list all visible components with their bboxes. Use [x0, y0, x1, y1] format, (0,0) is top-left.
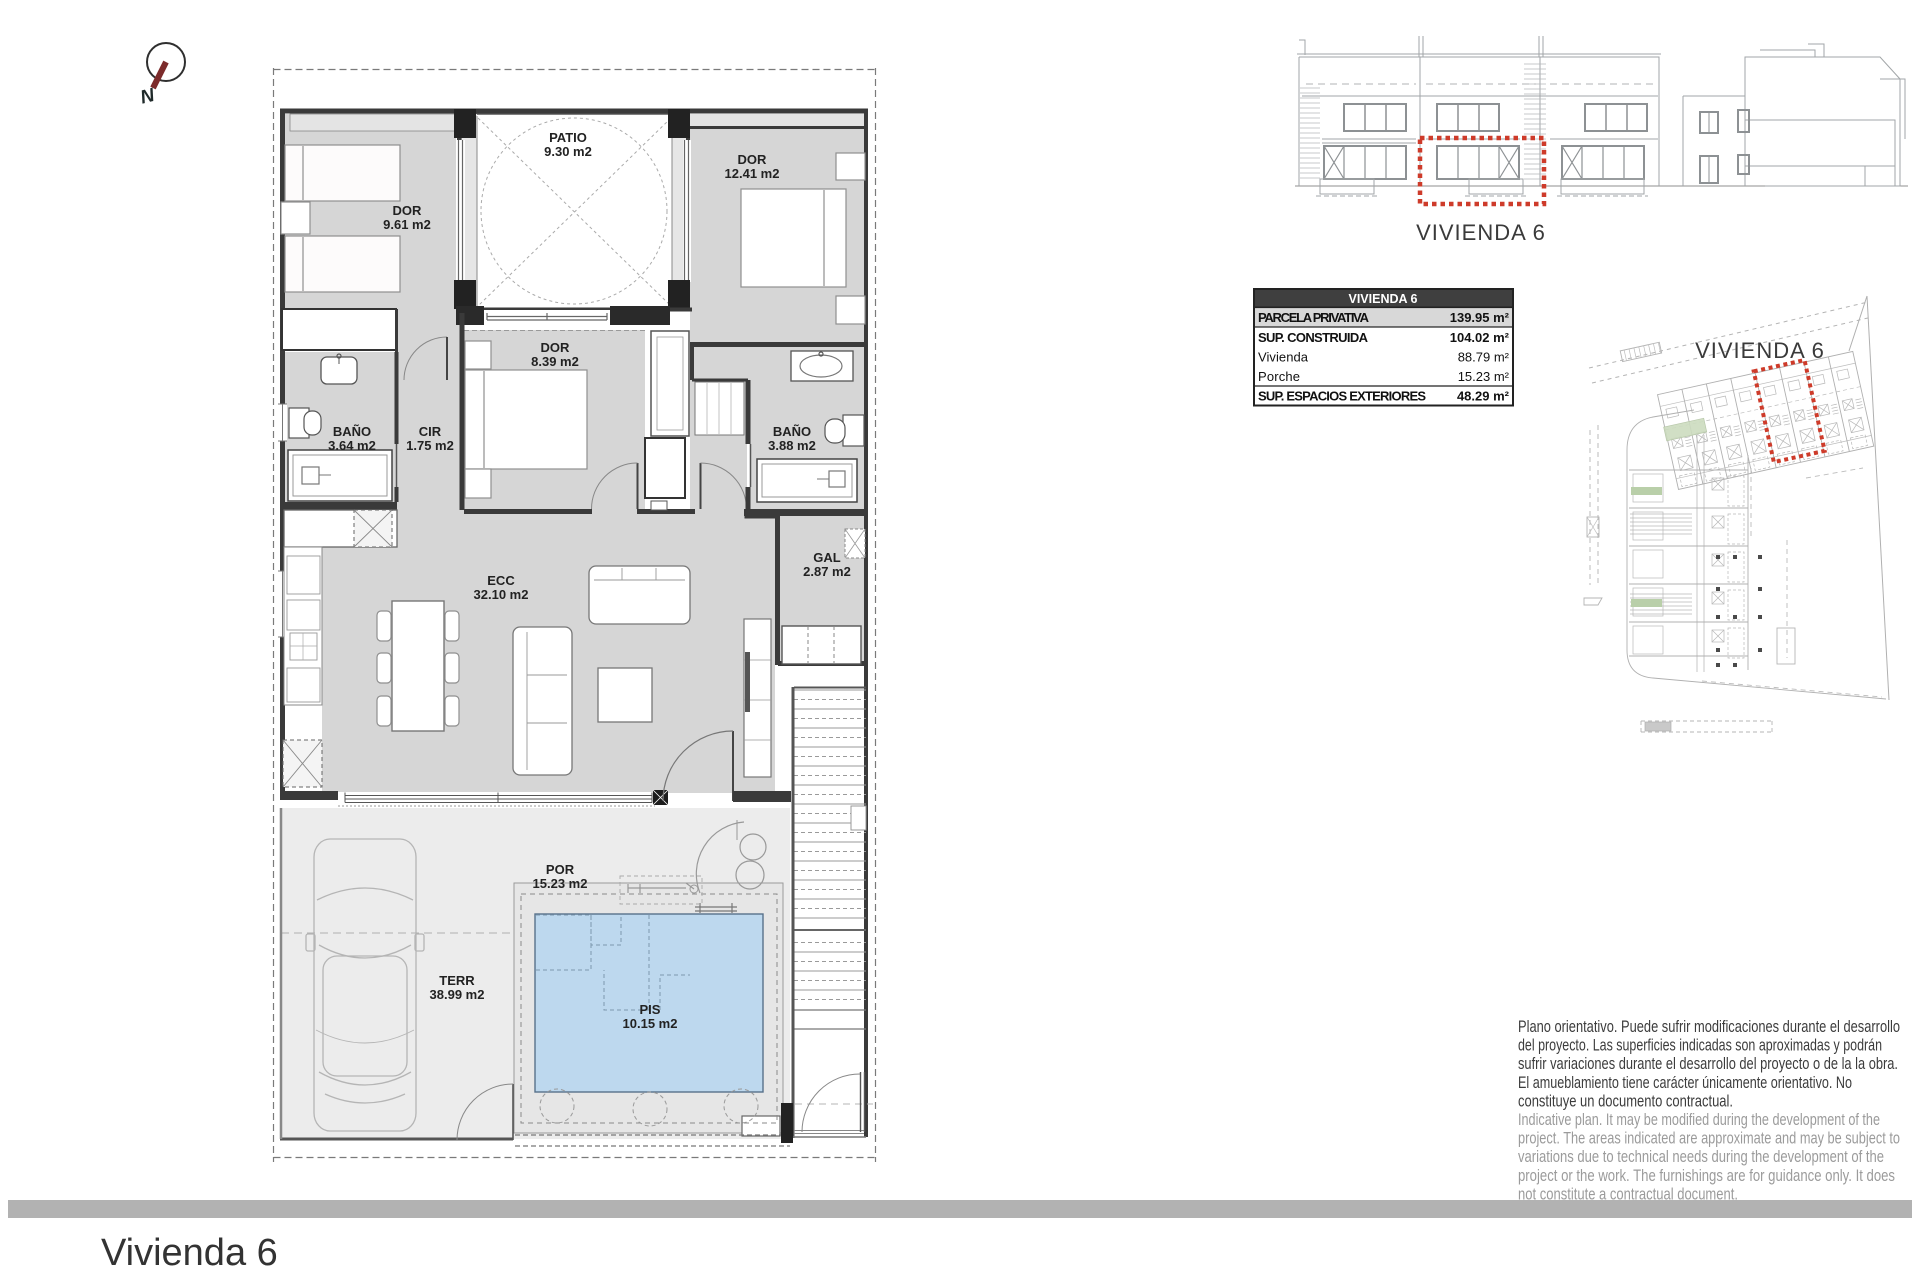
svg-text:Vivienda: Vivienda [1258, 350, 1309, 365]
svg-text:32.10 m2: 32.10 m2 [474, 587, 529, 602]
svg-text:12.41 m2: 12.41 m2 [725, 166, 780, 181]
svg-text:TERR: TERR [439, 973, 475, 988]
svg-text:88.79 m²: 88.79 m² [1458, 350, 1510, 365]
svg-text:sufrir variaciones durante el: sufrir variaciones durante el desarrollo… [1518, 1055, 1898, 1073]
svg-text:Porche: Porche [1258, 369, 1300, 384]
svg-text:15.23 m²: 15.23 m² [1458, 369, 1510, 384]
svg-text:DOR: DOR [738, 152, 768, 167]
svg-text:15.23 m2: 15.23 m2 [533, 876, 588, 891]
svg-text:project. The areas indicated a: project. The areas indicated are approxi… [1518, 1130, 1900, 1148]
svg-text:9.61 m2: 9.61 m2 [383, 217, 431, 232]
svg-text:10.15 m2: 10.15 m2 [623, 1016, 678, 1031]
svg-text:CIR: CIR [419, 424, 442, 439]
svg-text:PARCELA PRIVATIVA: PARCELA PRIVATIVA [1258, 310, 1370, 325]
svg-text:PIS: PIS [640, 1002, 661, 1017]
svg-text:38.99 m2: 38.99 m2 [430, 987, 485, 1002]
svg-text:Vivienda 6: Vivienda 6 [101, 1232, 278, 1274]
svg-text:1.75 m2: 1.75 m2 [406, 438, 454, 453]
svg-text:project or the work. The furni: project or the work. The furnishings are… [1518, 1167, 1895, 1185]
svg-text:del proyecto. Las superficies: del proyecto. Las superficies indicadas … [1518, 1037, 1882, 1055]
svg-text:139.95 m²: 139.95 m² [1450, 310, 1510, 325]
svg-text:GAL: GAL [813, 550, 841, 565]
svg-text:48.29 m²: 48.29 m² [1457, 389, 1510, 404]
svg-text:El amueblamiento tiene carácte: El amueblamiento tiene carácter únicamen… [1518, 1074, 1852, 1092]
svg-text:ECC: ECC [487, 573, 515, 588]
svg-text:VIVIENDA 6: VIVIENDA 6 [1348, 292, 1417, 306]
svg-text:PATIO: PATIO [549, 130, 587, 145]
svg-text:8.39 m2: 8.39 m2 [531, 354, 579, 369]
svg-text:BAÑO: BAÑO [333, 424, 371, 439]
svg-text:VIVIENDA 6: VIVIENDA 6 [1416, 220, 1546, 245]
svg-text:SUP. CONSTRUIDA: SUP. CONSTRUIDA [1258, 330, 1369, 345]
svg-text:3.64 m2: 3.64 m2 [328, 438, 376, 453]
svg-text:BAÑO: BAÑO [773, 424, 811, 439]
svg-text:VIVIENDA 6: VIVIENDA 6 [1695, 338, 1825, 363]
svg-text:Plano orientativo. Puede sufri: Plano orientativo. Puede sufrir modifica… [1518, 1018, 1900, 1036]
svg-text:DOR: DOR [393, 203, 423, 218]
svg-text:constituye un documento contra: constituye un documento contractual. [1518, 1092, 1733, 1110]
svg-text:variations due to technical ne: variations due to technical needs during… [1518, 1148, 1884, 1166]
svg-text:SUP. ESPACIOS EXTERIORES: SUP. ESPACIOS EXTERIORES [1258, 389, 1426, 404]
svg-text:2.87 m2: 2.87 m2 [803, 564, 851, 579]
svg-text:3.88 m2: 3.88 m2 [768, 438, 816, 453]
svg-text:Indicative plan. It may be mod: Indicative plan. It may be modified duri… [1518, 1111, 1880, 1129]
svg-text:104.02 m²: 104.02 m² [1450, 330, 1510, 345]
svg-text:9.30 m2: 9.30 m2 [544, 144, 592, 159]
svg-text:POR: POR [546, 862, 575, 877]
svg-text:DOR: DOR [541, 340, 571, 355]
